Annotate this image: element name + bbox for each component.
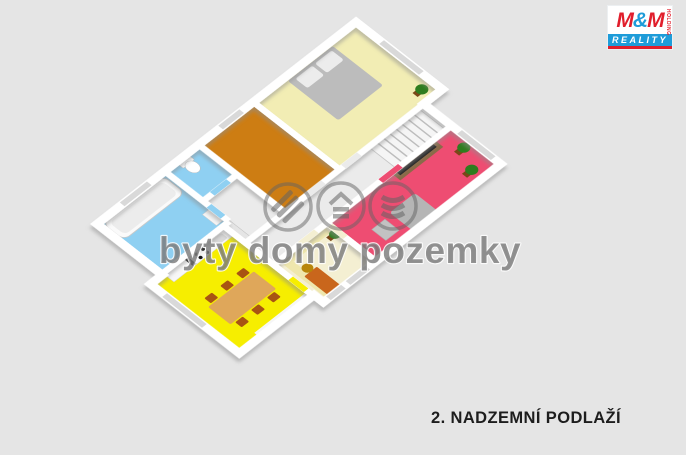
logo-ampersand: & <box>633 9 647 32</box>
watermark-text: byty domy pozemky <box>159 230 521 271</box>
floor-plan-canvas: byty domy pozemky <box>0 0 686 455</box>
floor-plan-image: byty domy pozemky 2. NADZEMNÍ PODLAŽÍ M&… <box>0 0 686 455</box>
floor-caption: 2. NADZEMNÍ PODLAŽÍ <box>431 409 621 428</box>
logo-red-strip <box>608 46 672 49</box>
logo-mm-row: M&M HOLDING <box>608 6 672 34</box>
agency-logo: M&M HOLDING REALITY <box>608 6 672 49</box>
logo-mm-text: M&M <box>616 10 663 31</box>
logo-holding-text: HOLDING <box>665 9 671 36</box>
logo-reality-bar: REALITY <box>608 34 672 46</box>
